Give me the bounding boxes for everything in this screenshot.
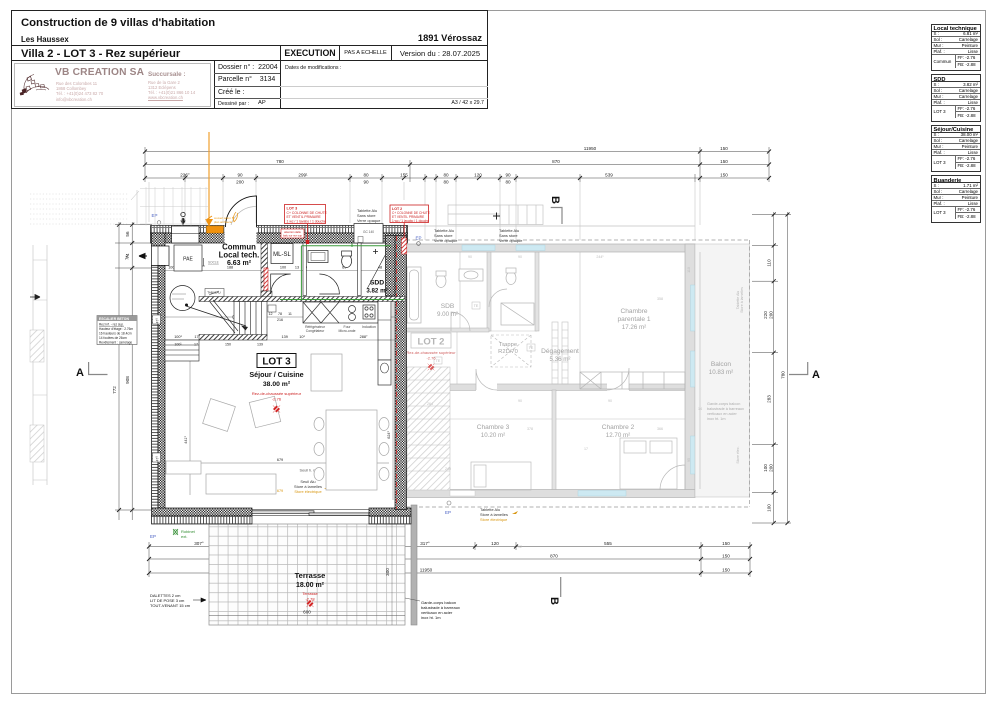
svg-text:299¹: 299¹: [298, 173, 308, 178]
svg-text:441¹: 441¹: [184, 435, 188, 443]
svg-text:GC 140: GC 140: [363, 230, 374, 234]
svg-text:14 foulées de 26cm: 14 foulées de 26cm: [99, 336, 127, 340]
svg-text:TE: TE: [436, 359, 441, 363]
svg-text:90: 90: [608, 399, 612, 403]
svg-text:17: 17: [194, 343, 198, 347]
svg-text:SOCLE: SOCLE: [208, 261, 219, 265]
svg-text:A: A: [812, 369, 820, 381]
svg-text:139: 139: [282, 335, 288, 339]
svg-text:90: 90: [237, 173, 243, 178]
svg-text:6.63 m²: 6.63 m²: [227, 260, 252, 267]
svg-text:366: 366: [657, 427, 663, 431]
svg-text:Verre opaque: Verre opaque: [434, 238, 457, 243]
svg-text:Store élec.: Store élec.: [736, 446, 740, 463]
svg-text:80: 80: [443, 180, 449, 185]
svg-text:TE: TE: [529, 346, 534, 350]
svg-text:10¹: 10¹: [299, 335, 305, 339]
svg-text:110: 110: [767, 259, 772, 267]
svg-text:226°: 226°: [180, 173, 190, 178]
svg-text:TOUT-VENANT 15 cm: TOUT-VENANT 15 cm: [150, 603, 191, 608]
svg-text:1 wc / 1 lavabo / 1 douche: 1 wc / 1 lavabo / 1 douche: [392, 219, 429, 223]
svg-text:Trappe: Trappe: [499, 342, 517, 348]
svg-text:150: 150: [720, 159, 728, 164]
svg-text:Rez-de-chaussée supérieur: Rez-de-chaussée supérieur: [406, 350, 456, 355]
svg-text:90: 90: [468, 255, 472, 259]
svg-text:624¹: 624¹: [387, 430, 391, 438]
svg-text:110: 110: [687, 267, 691, 273]
svg-text:Congélateur: Congélateur: [306, 329, 325, 333]
svg-text:10.20 m²: 10.20 m²: [481, 432, 505, 439]
svg-text:10.83 m²: 10.83 m²: [709, 369, 733, 376]
svg-text:317°: 317°: [420, 541, 430, 546]
svg-text:90: 90: [505, 173, 511, 178]
svg-text:150: 150: [225, 343, 231, 347]
svg-text:LOT 3: LOT 3: [262, 357, 291, 368]
svg-text:Induction: Induction: [362, 325, 376, 329]
svg-text:EP: EP: [150, 534, 156, 539]
svg-text:80: 80: [443, 173, 449, 178]
svg-text:Terrasse: Terrasse: [302, 591, 318, 596]
svg-text:78: 78: [278, 312, 282, 316]
svg-text:attention dalle: attention dalle: [284, 230, 301, 234]
svg-text:SDD: SDD: [370, 280, 384, 287]
svg-text:150: 150: [720, 146, 728, 151]
svg-text:ext.: ext.: [181, 534, 187, 539]
svg-text:5.36 m²: 5.36 m²: [550, 356, 571, 363]
svg-text:Dégagement: Dégagement: [541, 348, 579, 355]
svg-text:772: 772: [112, 386, 117, 394]
svg-text:56: 56: [125, 231, 130, 237]
svg-text:100: 100: [767, 504, 772, 512]
svg-text:11950: 11950: [584, 146, 597, 151]
svg-text:Séjour / Cuisine: Séjour / Cuisine: [249, 370, 303, 379]
svg-text:12: 12: [269, 312, 273, 316]
svg-text:600: 600: [303, 610, 311, 615]
svg-text:A: A: [76, 367, 84, 379]
svg-text:EP: EP: [416, 236, 422, 241]
svg-text:R2D/70: R2D/70: [498, 349, 518, 355]
svg-text:358: 358: [657, 297, 663, 301]
svg-text:200: 200: [769, 311, 774, 319]
svg-text:Chambre 2: Chambre 2: [602, 424, 635, 431]
svg-text:679: 679: [277, 489, 283, 493]
svg-text:100: 100: [763, 464, 768, 472]
svg-text:150: 150: [722, 554, 730, 559]
svg-text:378: 378: [527, 427, 533, 431]
svg-text:288°: 288°: [360, 335, 368, 339]
svg-text:-2.76: -2.76: [272, 397, 282, 402]
svg-text:240: 240: [445, 467, 451, 471]
svg-text:13: 13: [295, 266, 299, 270]
svg-text:244¹: 244¹: [596, 255, 604, 259]
svg-text:-2.76: -2.76: [426, 356, 436, 361]
svg-text:LOT 2: LOT 2: [418, 337, 445, 348]
svg-text:14: 14: [698, 407, 702, 411]
svg-text:300: 300: [385, 568, 390, 576]
svg-text:12.70 m²: 12.70 m²: [606, 432, 630, 439]
svg-text:100¹: 100¹: [174, 343, 182, 347]
svg-text:17: 17: [194, 335, 198, 339]
svg-text:parentale 1: parentale 1: [618, 316, 651, 323]
svg-text:Store électrique: Store électrique: [294, 489, 321, 494]
svg-text:780: 780: [781, 371, 786, 379]
svg-text:Terrasse: Terrasse: [295, 571, 326, 580]
svg-text:Garde-corps balcon: Garde-corps balcon: [707, 402, 740, 406]
svg-text:Micro-onde: Micro-onde: [339, 329, 356, 333]
svg-text:verticaux en acier: verticaux en acier: [707, 412, 737, 416]
svg-text:16 hauteurs de 18.4cm: 16 hauteurs de 18.4cm: [99, 332, 132, 336]
svg-text:908: 908: [125, 376, 130, 384]
svg-text:679: 679: [277, 458, 283, 462]
svg-text:Revêtement : carrelage: Revêtement : carrelage: [99, 341, 132, 345]
svg-text:3.82 m²: 3.82 m²: [366, 288, 387, 295]
svg-text:balc sur rez sup: balc sur rez sup: [283, 234, 302, 238]
svg-text:Rez-de-chaussée supérieur: Rez-de-chaussée supérieur: [252, 391, 302, 396]
svg-text:150: 150: [722, 568, 730, 573]
svg-text:90: 90: [363, 180, 369, 185]
svg-text:150: 150: [720, 173, 728, 178]
svg-text:539: 539: [605, 173, 613, 178]
svg-text:220: 220: [763, 311, 768, 319]
svg-text:Verre opaque: Verre opaque: [499, 238, 522, 243]
svg-text:B: B: [549, 196, 561, 204]
svg-text:120: 120: [491, 541, 499, 546]
svg-text:870: 870: [552, 159, 560, 164]
svg-text:80: 80: [505, 180, 511, 185]
svg-text:307°: 307°: [194, 541, 204, 546]
svg-text:B: B: [548, 597, 560, 605]
svg-text:Local tech.: Local tech.: [219, 251, 260, 260]
svg-text:200: 200: [236, 180, 244, 185]
svg-text:283: 283: [767, 395, 772, 403]
svg-text:Rez inf. - rez sup.: Rez inf. - rez sup.: [99, 323, 124, 327]
svg-text:Balcon: Balcon: [711, 361, 731, 368]
svg-text:74: 74: [125, 255, 130, 260]
svg-text:38.00 m²: 38.00 m²: [263, 381, 291, 388]
svg-text:LOT 3: LOT 3: [287, 207, 298, 211]
svg-text:ML-SL: ML-SL: [273, 252, 291, 258]
svg-text:100: 100: [280, 266, 286, 270]
svg-text:90: 90: [518, 255, 522, 259]
svg-text:47¹: 47¹: [156, 456, 160, 462]
svg-text:150: 150: [722, 541, 730, 546]
svg-text:264: 264: [427, 402, 433, 406]
svg-text:inox ht. 1m: inox ht. 1m: [421, 615, 441, 620]
svg-text:95: 95: [687, 458, 691, 462]
svg-text:200: 200: [769, 464, 774, 472]
svg-text:Chambre 3: Chambre 3: [477, 424, 510, 431]
svg-text:17.26 m²: 17.26 m²: [622, 324, 646, 331]
svg-text:17: 17: [584, 447, 588, 451]
svg-text:11950: 11950: [420, 568, 433, 573]
svg-text:100¹: 100¹: [174, 335, 182, 339]
svg-text:555: 555: [604, 541, 612, 546]
svg-text:9.00 m²: 9.00 m²: [437, 311, 458, 318]
svg-text:80: 80: [363, 173, 369, 178]
svg-text:870: 870: [550, 554, 558, 559]
svg-text:balustrade à barreaux: balustrade à barreaux: [707, 407, 744, 411]
svg-text:139: 139: [257, 343, 263, 347]
svg-text:SDB: SDB: [441, 303, 455, 310]
svg-text:47¹: 47¹: [156, 318, 160, 324]
svg-text:Hauteur d'étage : 2.76m: Hauteur d'étage : 2.76m: [99, 327, 133, 331]
svg-text:90: 90: [518, 399, 522, 403]
svg-text:18.00 m²: 18.00 m²: [296, 582, 325, 589]
svg-text:92: 92: [518, 545, 522, 549]
svg-text:Store à lamelles: Store à lamelles: [740, 287, 744, 313]
svg-text:120: 120: [474, 173, 482, 178]
svg-text:11: 11: [288, 312, 292, 316]
svg-text:780: 780: [276, 159, 284, 164]
svg-text:Verre opaque: Verre opaque: [357, 218, 380, 223]
svg-text:Chambre: Chambre: [620, 308, 647, 315]
svg-text:1 wc / 1 lavabo / 1 douche: 1 wc / 1 lavabo / 1 douche: [287, 219, 327, 223]
svg-text:plan architecte: plan architecte: [214, 220, 233, 224]
svg-text:inox ht. 1m: inox ht. 1m: [707, 417, 726, 421]
svg-text:ESCALIER BETON: ESCALIER BETON: [99, 317, 129, 321]
svg-text:155: 155: [400, 173, 408, 178]
svg-text:EP: EP: [152, 213, 158, 218]
svg-text:PAE: PAE: [183, 257, 193, 263]
svg-text:TE: TE: [474, 304, 479, 308]
svg-text:216: 216: [277, 318, 283, 322]
svg-text:Store électrique: Store électrique: [480, 517, 507, 522]
svg-text:EP: EP: [445, 510, 451, 515]
